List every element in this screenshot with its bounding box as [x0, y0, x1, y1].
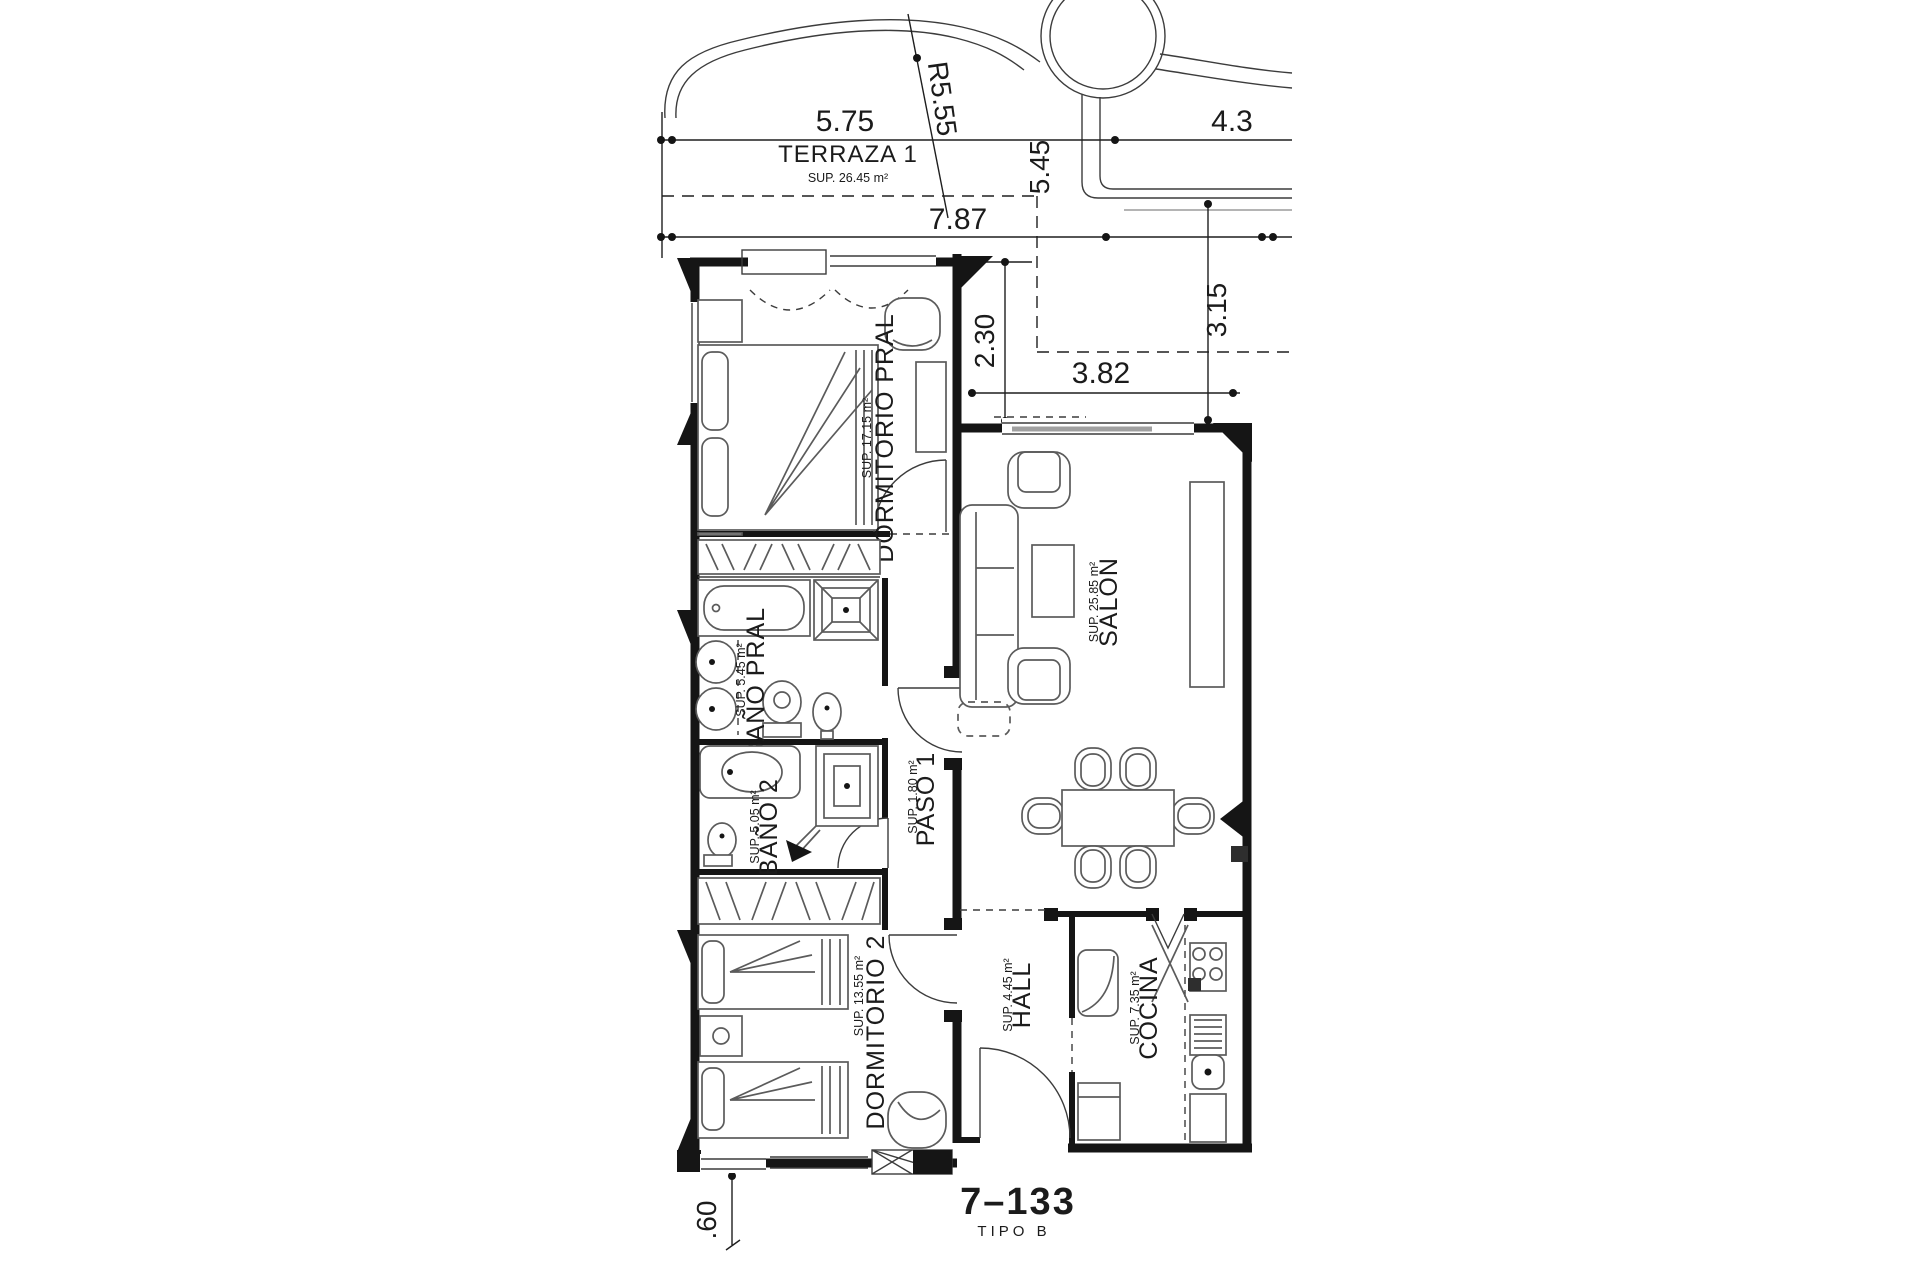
sofa-symbol: [958, 505, 1018, 736]
dining-set-symbol: [1022, 748, 1214, 888]
bench-symbol: [698, 533, 742, 535]
drawing-type: TIPO B: [977, 1223, 1050, 1240]
room-bano-pral: BAÑO PRAL SUP. 5.45 m²: [696, 580, 878, 759]
wall-flag-icon: [1220, 798, 1247, 840]
room-area-hall: SUP. 4.45 m²: [1001, 958, 1015, 1031]
nightstand-symbol: [698, 300, 742, 342]
dim-right-width: 4.3: [1211, 105, 1253, 138]
vanity-sink-symbol: [700, 746, 800, 798]
dim-salon-side: 3.15: [1201, 283, 1232, 338]
single-bed-symbol: [698, 935, 848, 1009]
room-label-terraza: TERRAZA 1: [778, 141, 918, 168]
planter-circle-outer: [1041, 0, 1165, 98]
single-bed-symbol: [698, 1062, 848, 1138]
walkway-curves: [665, 0, 1292, 210]
toilet-symbol: [704, 823, 736, 866]
chair-symbol: [1172, 798, 1214, 834]
double-bed-symbol: [698, 345, 878, 530]
door-entry: [980, 1048, 1070, 1138]
cabinet-symbol: [1190, 1094, 1226, 1142]
title-block: 7–133 TIPO B: [960, 1181, 1076, 1240]
sink-symbol: [696, 641, 736, 683]
sideboard-symbol: [1190, 482, 1224, 687]
column-hatch: [1231, 846, 1248, 862]
wall-flag-icon: [957, 256, 993, 292]
nightstand-symbol: [700, 1016, 742, 1056]
dim-terrace-depth: 5.45: [1024, 140, 1055, 195]
room-dormitorio-pral: DORMITORIO PRAL SUP. 17.15 m²: [698, 290, 946, 563]
chair-symbol: [1120, 846, 1156, 888]
dim-total-width: 7.87: [929, 203, 987, 236]
armchair-symbol: [1008, 648, 1070, 704]
floor-plan: R5.55 5.75 4.3 TERRAZA 1 SUP. 26.45 m² 5…: [0, 0, 1920, 1280]
room-area-terraza: SUP. 26.45 m²: [808, 171, 888, 185]
wardrobe-symbol: [698, 540, 880, 577]
room-area-dormitorio-pral: SUP. 17.15 m²: [860, 398, 874, 478]
dim-radius: R5.55: [922, 60, 963, 138]
room-label-dormitorio-pral: DORMITORIO PRAL: [871, 313, 899, 562]
room-cocina: COCINA SUP. 7.35 m²: [1078, 925, 1226, 1142]
dresser-symbol: [916, 362, 946, 452]
coffee-table-symbol: [1032, 545, 1074, 617]
room-hall: HALL SUP. 4.45 m²: [1001, 958, 1036, 1031]
wardrobe-symbol: [698, 878, 880, 924]
shower-symbol: [814, 580, 878, 640]
room-dormitorio-2: DORMITORIO 2 SUP. 13.55 m²: [698, 935, 946, 1148]
chair-symbol: [1120, 748, 1156, 790]
fridge-symbol: [1078, 1083, 1120, 1140]
sink-symbol: [696, 688, 736, 730]
dining-table-symbol: [1062, 790, 1174, 846]
shaft-box: [872, 1150, 952, 1174]
armchair-symbol: [1008, 452, 1070, 508]
floor-plan-page: R5.55 5.75 4.3 TERRAZA 1 SUP. 26.45 m² 5…: [0, 0, 1920, 1280]
room-area-salon: SUP. 25.85 m²: [1087, 562, 1101, 642]
room-salon: SALON SUP. 25.85 m²: [958, 452, 1224, 888]
bidet-symbol: [813, 693, 841, 739]
room-bano-2: BAÑO 2 SUP. 5.05 m²: [700, 746, 878, 876]
room-area-cocina: SUP. 7.35 m²: [1128, 971, 1142, 1044]
room-area-bano-2: SUP. 5.05 m²: [748, 790, 762, 863]
closet-symbol: [1078, 950, 1118, 1016]
room-paso-1: PASO 1 SUP. 1.80 m²: [906, 752, 940, 846]
room-label-dormitorio-2: DORMITORIO 2: [862, 935, 890, 1130]
chair-symbol: [1075, 846, 1111, 888]
dim-step: .60: [691, 1201, 722, 1240]
planter-circle-inner: [1050, 0, 1156, 89]
stove-symbol: [1188, 943, 1226, 991]
dim-salon-front: 3.82: [1072, 357, 1130, 390]
dim-terrace-width: 5.75: [816, 105, 874, 138]
window-dorm-pral-top: [742, 250, 936, 274]
window-salon-top: [994, 417, 1194, 438]
room-area-dormitorio-2: SUP. 13.55 m²: [852, 956, 866, 1036]
dim-upper-offset: 2.30: [969, 314, 1000, 369]
room-area-paso-1: SUP. 1.80 m²: [906, 760, 920, 833]
corner-armchair-symbol: [888, 1092, 946, 1148]
kitchen-sink-symbol: [1190, 1015, 1226, 1089]
drawing-number: 7–133: [960, 1181, 1076, 1223]
chair-symbol: [1075, 748, 1111, 790]
room-area-bano-pral: SUP. 5.45 m²: [734, 643, 748, 716]
chair-symbol: [1022, 798, 1064, 834]
